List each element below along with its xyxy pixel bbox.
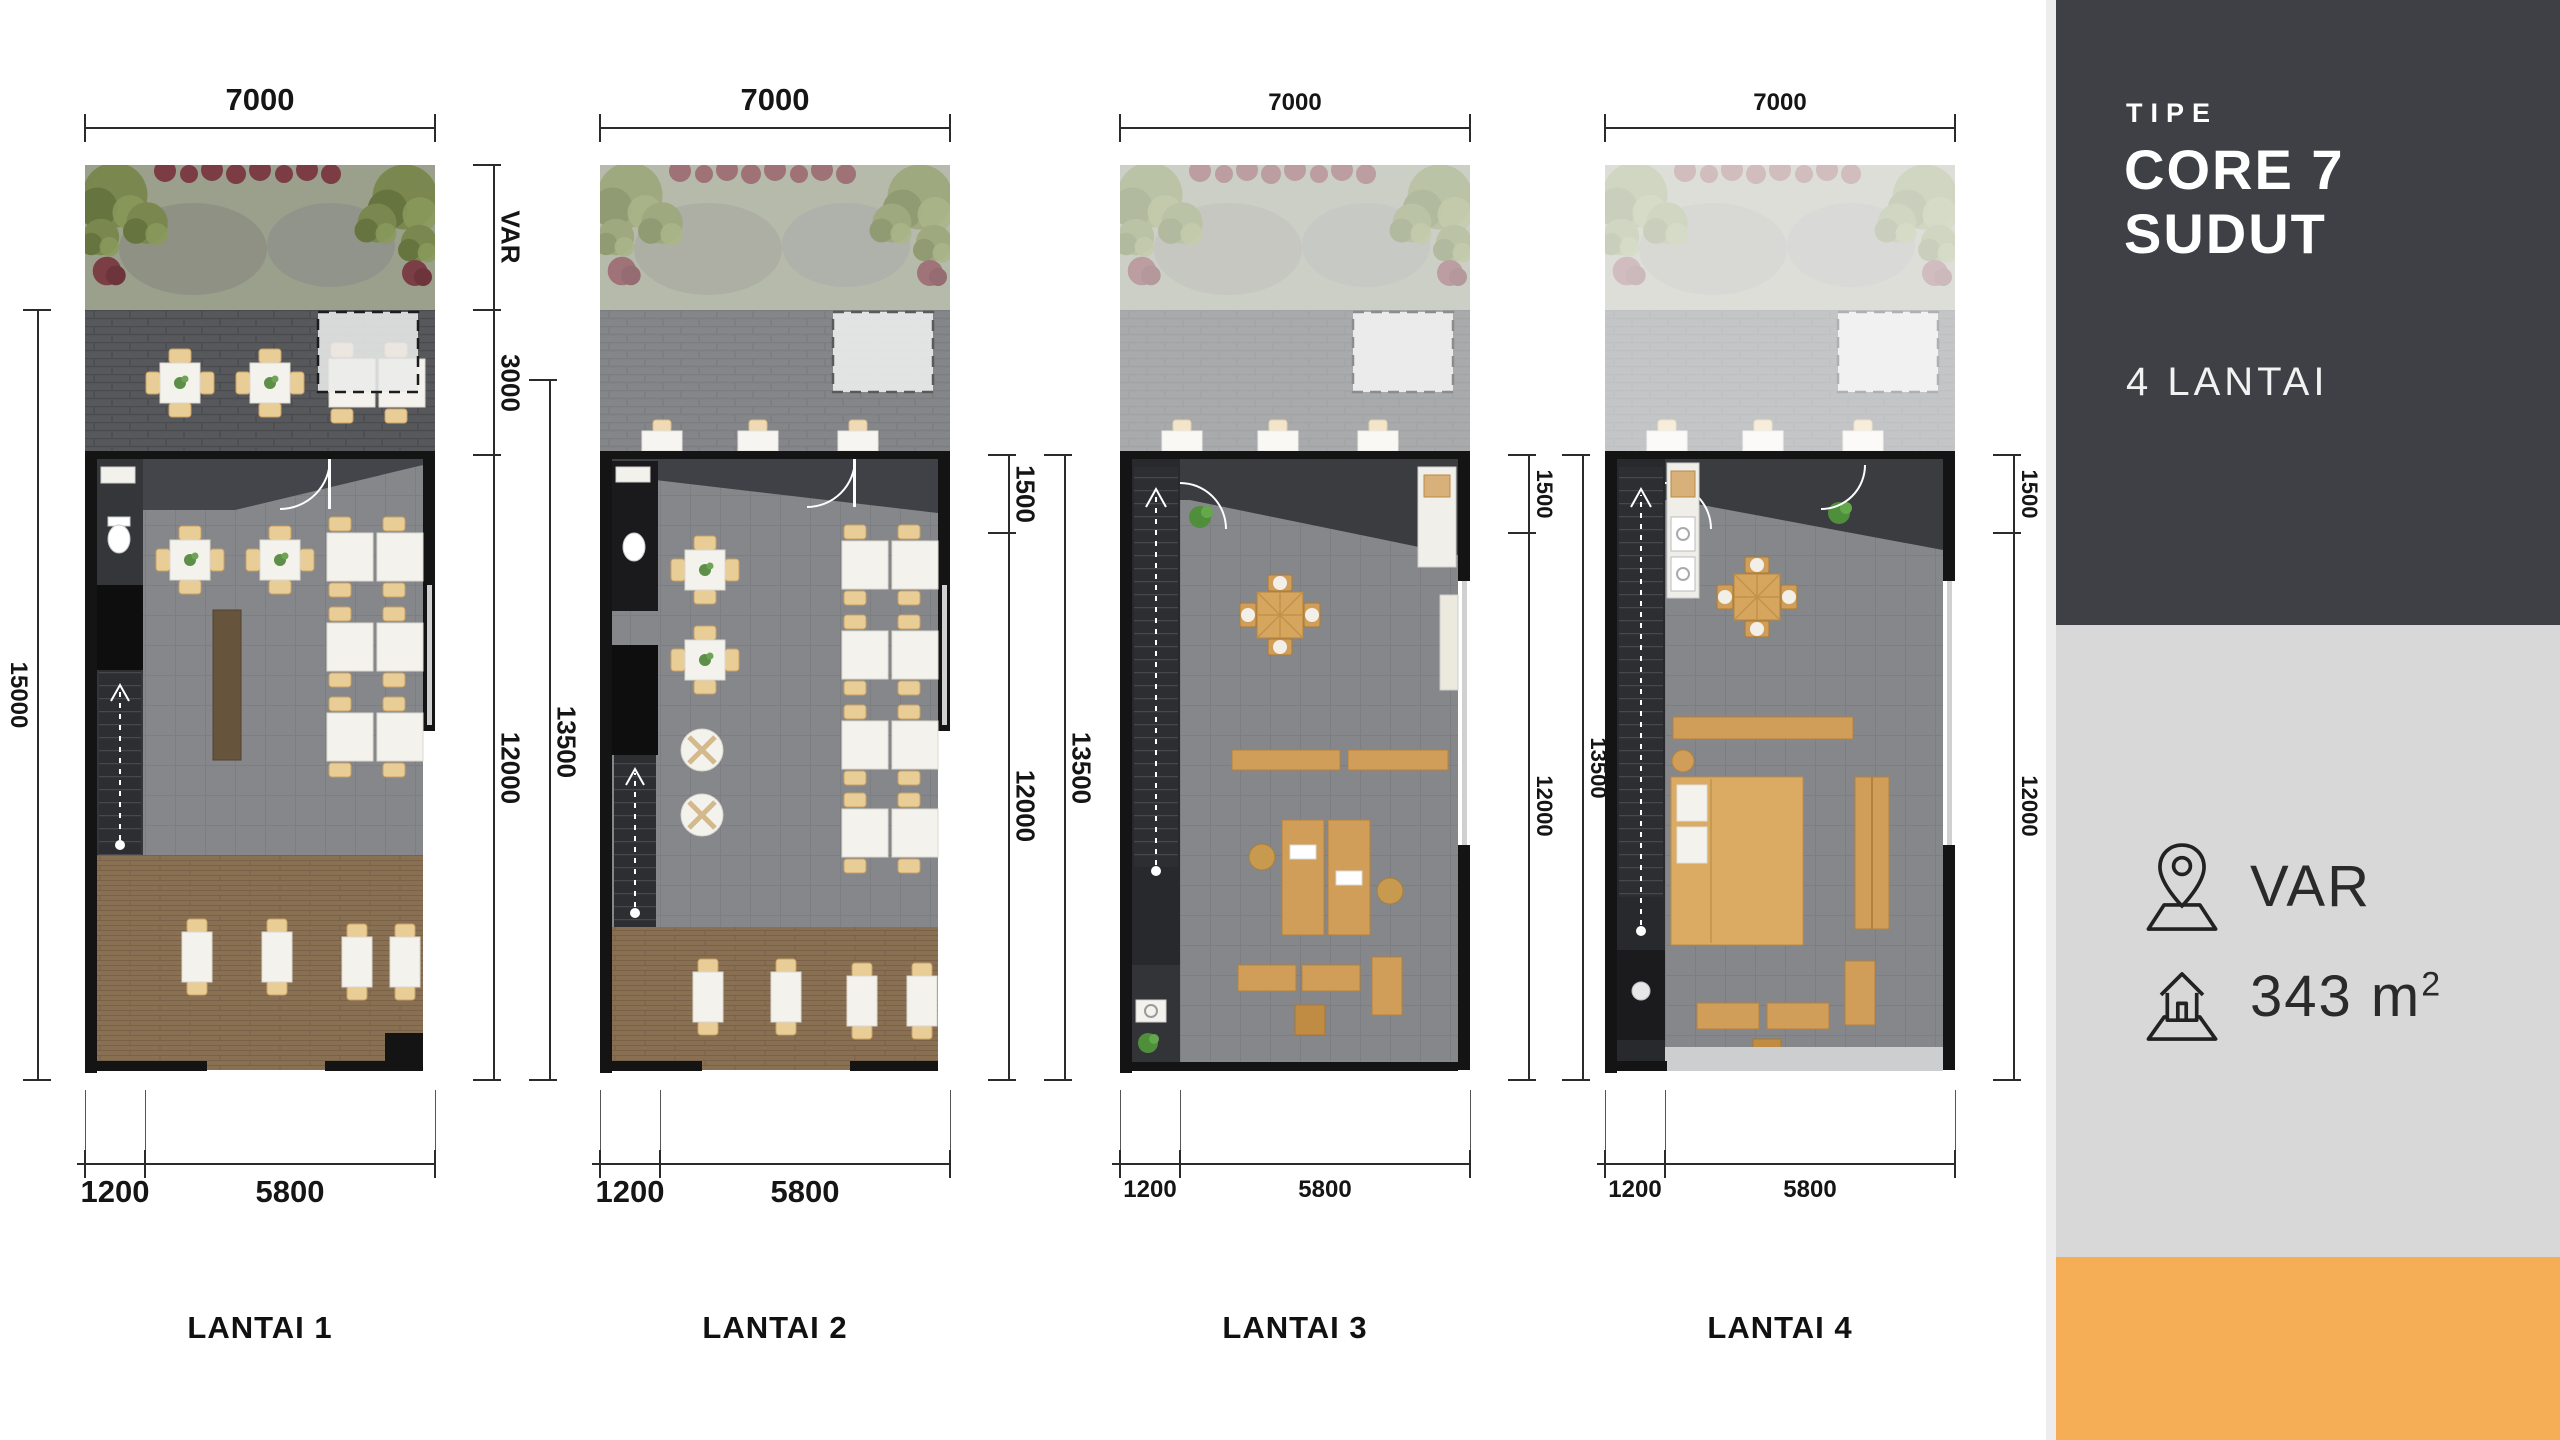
dim-label-1200: 1200 [1608, 1176, 1661, 1204]
dim-tick [1508, 1079, 1536, 1081]
stair-corridor [1617, 459, 1665, 1070]
dim-tick [84, 114, 86, 142]
dim-label-5800: 5800 [771, 1174, 840, 1210]
console [1440, 595, 1458, 690]
garden-terrace-area [85, 165, 435, 455]
dim-tick [1508, 454, 1536, 456]
credenza [1348, 750, 1448, 770]
floor-count-label: 4 LANTAI [2126, 360, 2328, 405]
dim-tick [1993, 454, 2021, 456]
dim-tick [1044, 454, 1072, 456]
dim-label-1500: 1500 [1010, 465, 1041, 523]
left-wall [85, 451, 97, 1073]
area-value: 343 m2 [2250, 963, 2442, 1030]
dim-tick [434, 114, 436, 142]
dim-line-bottom [1597, 1163, 1955, 1165]
dim-tick [1604, 1150, 1606, 1178]
credenza [1232, 750, 1340, 770]
left-wall [1120, 451, 1132, 1073]
house-icon [2140, 948, 2224, 1044]
dim-tick [1469, 114, 1471, 142]
plan-title-lantai-2: LANTAI 2 [702, 1310, 847, 1346]
dim-tick [1469, 1150, 1471, 1178]
floor-plan-drawing-4 [1605, 165, 1955, 1080]
plan-title-lantai-1: LANTAI 1 [187, 1310, 332, 1346]
round-table [681, 729, 723, 771]
service-corridor [97, 459, 143, 855]
dim-tick [473, 164, 501, 166]
location-value: VAR [2250, 853, 2371, 920]
garden-terrace-area [600, 165, 950, 455]
dim-line-left [37, 310, 39, 1080]
dim-label-12000: 12000 [2016, 775, 2042, 836]
dim-tick [1604, 114, 1606, 142]
sofa [1845, 961, 1875, 1025]
dim-label-1200: 1200 [81, 1174, 150, 1210]
dim-tick [473, 309, 501, 311]
left-wall [1605, 451, 1617, 1073]
dim-tick [1954, 1150, 1956, 1178]
coffee-table [1295, 1005, 1325, 1035]
sofa [1302, 965, 1360, 991]
interior-floor [1617, 459, 1943, 1070]
dim-tick [1562, 454, 1590, 456]
type-name-line2: SUDUT [2124, 202, 2345, 266]
dim-line-right [1008, 455, 1010, 1080]
dim-line-bottom [77, 1163, 435, 1165]
plan-title-lantai-3: LANTAI 3 [1222, 1310, 1367, 1346]
dim-tick [473, 454, 501, 456]
dim-label-3000: 3000 [495, 354, 526, 412]
bed [1671, 777, 1803, 945]
type-name: CORE 7 SUDUT [2124, 138, 2345, 266]
dim-label-top: 7000 [741, 82, 810, 118]
dim-tick [1664, 1150, 1666, 1178]
type-name-line1: CORE 7 [2124, 138, 2345, 202]
service-corridor [612, 461, 658, 930]
garden-terrace-area [1605, 165, 1955, 455]
dim-label-var: VAR [495, 211, 526, 264]
sidebar-header-panel [2056, 0, 2560, 625]
garden-terrace-area [1120, 165, 1470, 455]
dim-tick [988, 532, 1016, 534]
side-table [1672, 750, 1694, 772]
dim-label-top: 7000 [226, 82, 295, 118]
dim-label-1500: 1500 [1531, 470, 1557, 519]
dim-tick [1508, 532, 1536, 534]
round-table [681, 794, 723, 836]
dim-label-top: 7000 [1268, 89, 1321, 117]
dim-tick [988, 1079, 1016, 1081]
stair-corridor [1132, 459, 1180, 1070]
dim-tick [1993, 1079, 2021, 1081]
dim-label-top: 7000 [1753, 89, 1806, 117]
sidebar-spec-panel [2056, 625, 2560, 1257]
dim-tick [434, 1150, 436, 1178]
dim-line-bottom [1112, 1163, 1470, 1165]
credenza [1673, 717, 1853, 739]
left-wall [600, 451, 612, 1073]
dim-tick [23, 1079, 51, 1081]
type-label: TIPE [2126, 98, 2218, 129]
sofa [1697, 1003, 1759, 1029]
floor-plan-drawing-1 [85, 165, 435, 1080]
dim-tick [1044, 1079, 1072, 1081]
sofa [1767, 1003, 1829, 1029]
dim-tick [1954, 114, 1956, 142]
floor-plan-drawing-2 [600, 165, 950, 1080]
dim-tick [599, 114, 601, 142]
dim-line-top [600, 127, 950, 129]
dim-label-5800: 5800 [1783, 1176, 1836, 1204]
area-superscript: 2 [2421, 965, 2442, 1003]
interior-floor [612, 459, 938, 927]
dim-line-outer [1582, 455, 1584, 1080]
dim-tick [23, 309, 51, 311]
dim-label-12000: 12000 [1531, 775, 1557, 836]
dim-tick [1179, 1150, 1181, 1178]
sofa [1372, 957, 1402, 1015]
dim-line-right [493, 165, 495, 1080]
balcony-strip [1665, 1047, 1943, 1071]
dim-label-12000: 12000 [1010, 770, 1041, 842]
dim-tick [1993, 532, 2021, 534]
location-pin-icon [2140, 838, 2224, 934]
right-wall [1943, 451, 1955, 581]
dim-tick [1562, 1079, 1590, 1081]
dim-label-12000: 12000 [495, 732, 526, 804]
dim-line-right [1528, 455, 1530, 1080]
dim-tick [529, 379, 557, 381]
dim-label-13500: 13500 [551, 706, 582, 778]
dim-label-1200: 1200 [596, 1174, 665, 1210]
dim-label-1200: 1200 [1123, 1176, 1176, 1204]
dim-label-1500: 1500 [2016, 470, 2042, 519]
sofa [1238, 965, 1296, 991]
chair [1249, 844, 1275, 870]
right-wall [1458, 451, 1470, 581]
dim-line-top [1120, 127, 1470, 129]
dim-label-left: 15000 [4, 662, 32, 729]
dim-tick [988, 454, 1016, 456]
sidebar-accent-panel [2056, 1257, 2560, 1440]
dim-label-13500: 13500 [1066, 732, 1097, 804]
dim-tick [1119, 114, 1121, 142]
sidebar-divider [2046, 0, 2056, 1440]
dim-tick [949, 114, 951, 142]
dim-line-bottom [592, 1163, 950, 1165]
dim-tick [949, 1150, 951, 1178]
wood-deck [97, 855, 423, 1070]
dim-tick [473, 1079, 501, 1081]
dim-line-top [85, 127, 435, 129]
dim-tick [1119, 1150, 1121, 1178]
dim-label-5800: 5800 [1298, 1176, 1351, 1204]
floor-plan-sheet: { "panel": { "type_label": "TIPE", "type… [0, 0, 2560, 1440]
desk [1282, 820, 1324, 935]
dim-line-top [1605, 127, 1955, 129]
floor-plan-drawing-3 [1120, 165, 1470, 1080]
dim-line-right [2013, 455, 2015, 1080]
dim-tick [529, 1079, 557, 1081]
counter [213, 610, 241, 760]
plan-title-lantai-4: LANTAI 4 [1707, 1310, 1852, 1346]
dim-label-5800: 5800 [256, 1174, 325, 1210]
chair [1377, 878, 1403, 904]
